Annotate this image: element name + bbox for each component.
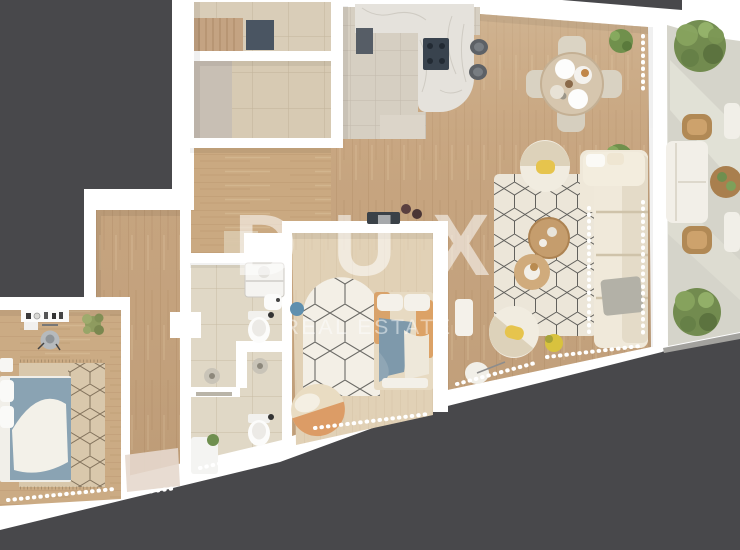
svg-text:REAL ESTATE: REAL ESTATE (283, 315, 452, 339)
svg-text:DUX: DUX (234, 197, 526, 294)
